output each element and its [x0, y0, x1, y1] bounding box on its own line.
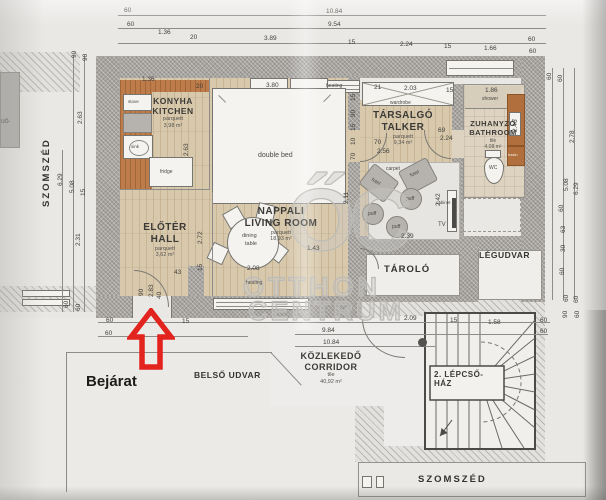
dim-line: [62, 150, 63, 312]
dim-line: [118, 43, 546, 44]
cabinet-label: cabinet: [436, 200, 451, 205]
entrance-arrow: [127, 308, 175, 370]
basin-label: basin: [508, 152, 518, 157]
neighbor-block: [0, 72, 20, 148]
room-label-corridor: KÖZLEKEDŐ CORRIDOR tile 40,92 m²: [288, 351, 374, 386]
room-label-hall: ELŐTÉR HALL parquett 3,62 m²: [130, 222, 200, 259]
room-label-living: NAPPALI LIVING ROOM parquett 18,93 m²: [226, 206, 336, 243]
dimension-label: 5.08: [564, 178, 571, 191]
room-label-kitchen: KONYHA KITCHEN parquett 3,98 m²: [134, 96, 212, 130]
dimension-label: 60: [564, 295, 571, 302]
dimension-label: 1.36: [158, 30, 171, 37]
bathroom-void-outline: [463, 198, 521, 232]
shower-label: shower: [482, 96, 498, 102]
hall-living-divider: [212, 192, 213, 296]
tv-label: TV: [438, 222, 446, 228]
dimension-label: 1.66: [484, 46, 497, 53]
dimension-label: 60: [124, 8, 131, 15]
label-legudvar: LÉGUDVAR: [479, 250, 530, 260]
double-bed-label: double bed: [258, 152, 293, 159]
dimension-label: 3.89: [264, 36, 277, 43]
label-szomszed-bottom: SZOMSZÉD: [418, 474, 487, 485]
wall-left: [96, 56, 120, 316]
kitchen-hall-divider: [120, 189, 210, 190]
label-tarolo: TÁROLÓ: [384, 264, 430, 275]
stair-bottom-box: [362, 476, 372, 488]
tv: [452, 198, 456, 228]
dim-line: [84, 55, 85, 312]
dimension-label: 20: [190, 35, 197, 42]
column-dot: [418, 338, 427, 347]
kitchen-counter-top: [150, 80, 210, 92]
photo-shadow-right-band: [584, 310, 606, 500]
watermark-line2: CENTRUM: [248, 298, 404, 325]
dim-line: [574, 68, 575, 300]
dimension-label: 60: [529, 49, 536, 56]
room-label-talker: TÁRSALGÓ TALKER parquett 9,34 m²: [356, 110, 450, 147]
wardrobe-label: wardrobe: [390, 100, 411, 106]
dim-line: [118, 15, 546, 16]
dimension-label: 2.31: [76, 233, 83, 246]
label-belso-udvar: BELSŐ UDVAR: [194, 370, 261, 380]
room-label-bathroom: ZUHANYZÓ BATHROOM tile 4,08 m²: [462, 120, 524, 150]
dimension-label: 15: [444, 44, 451, 51]
dimension-label: 60: [575, 311, 582, 318]
wc-label: WC: [489, 165, 497, 171]
dim-line: [295, 346, 435, 347]
window-top-right: [446, 60, 514, 76]
puff-label: puff: [406, 196, 414, 202]
room-label-staircase: 2. LÉPCSŐ- HÁZ: [434, 370, 498, 389]
dim-line: [563, 68, 564, 300]
courtyard-line-v: [66, 352, 67, 492]
wall-stub-hall: [188, 266, 204, 296]
kitchen-living-divider: [209, 78, 210, 190]
label-bejarat: Bejárat: [86, 373, 137, 390]
floor-plan-page: stove sink fridge double bed dining tabl…: [0, 0, 606, 500]
dim-line: [295, 334, 548, 335]
edge-text-fragment: UŐ-: [1, 119, 10, 125]
stair-bottom-box: [376, 476, 384, 488]
dim-line: [118, 28, 546, 29]
dimension-label: 30: [561, 245, 568, 252]
dimension-label: 90: [563, 311, 570, 318]
dim-line: [552, 68, 553, 300]
fridge-label: fridge: [160, 169, 173, 175]
label-szomszed-left: SZOMSZÉD: [41, 138, 52, 207]
sink-label: sink: [131, 144, 139, 149]
dim-line: [73, 55, 74, 312]
dimension-label: 63: [561, 226, 568, 233]
